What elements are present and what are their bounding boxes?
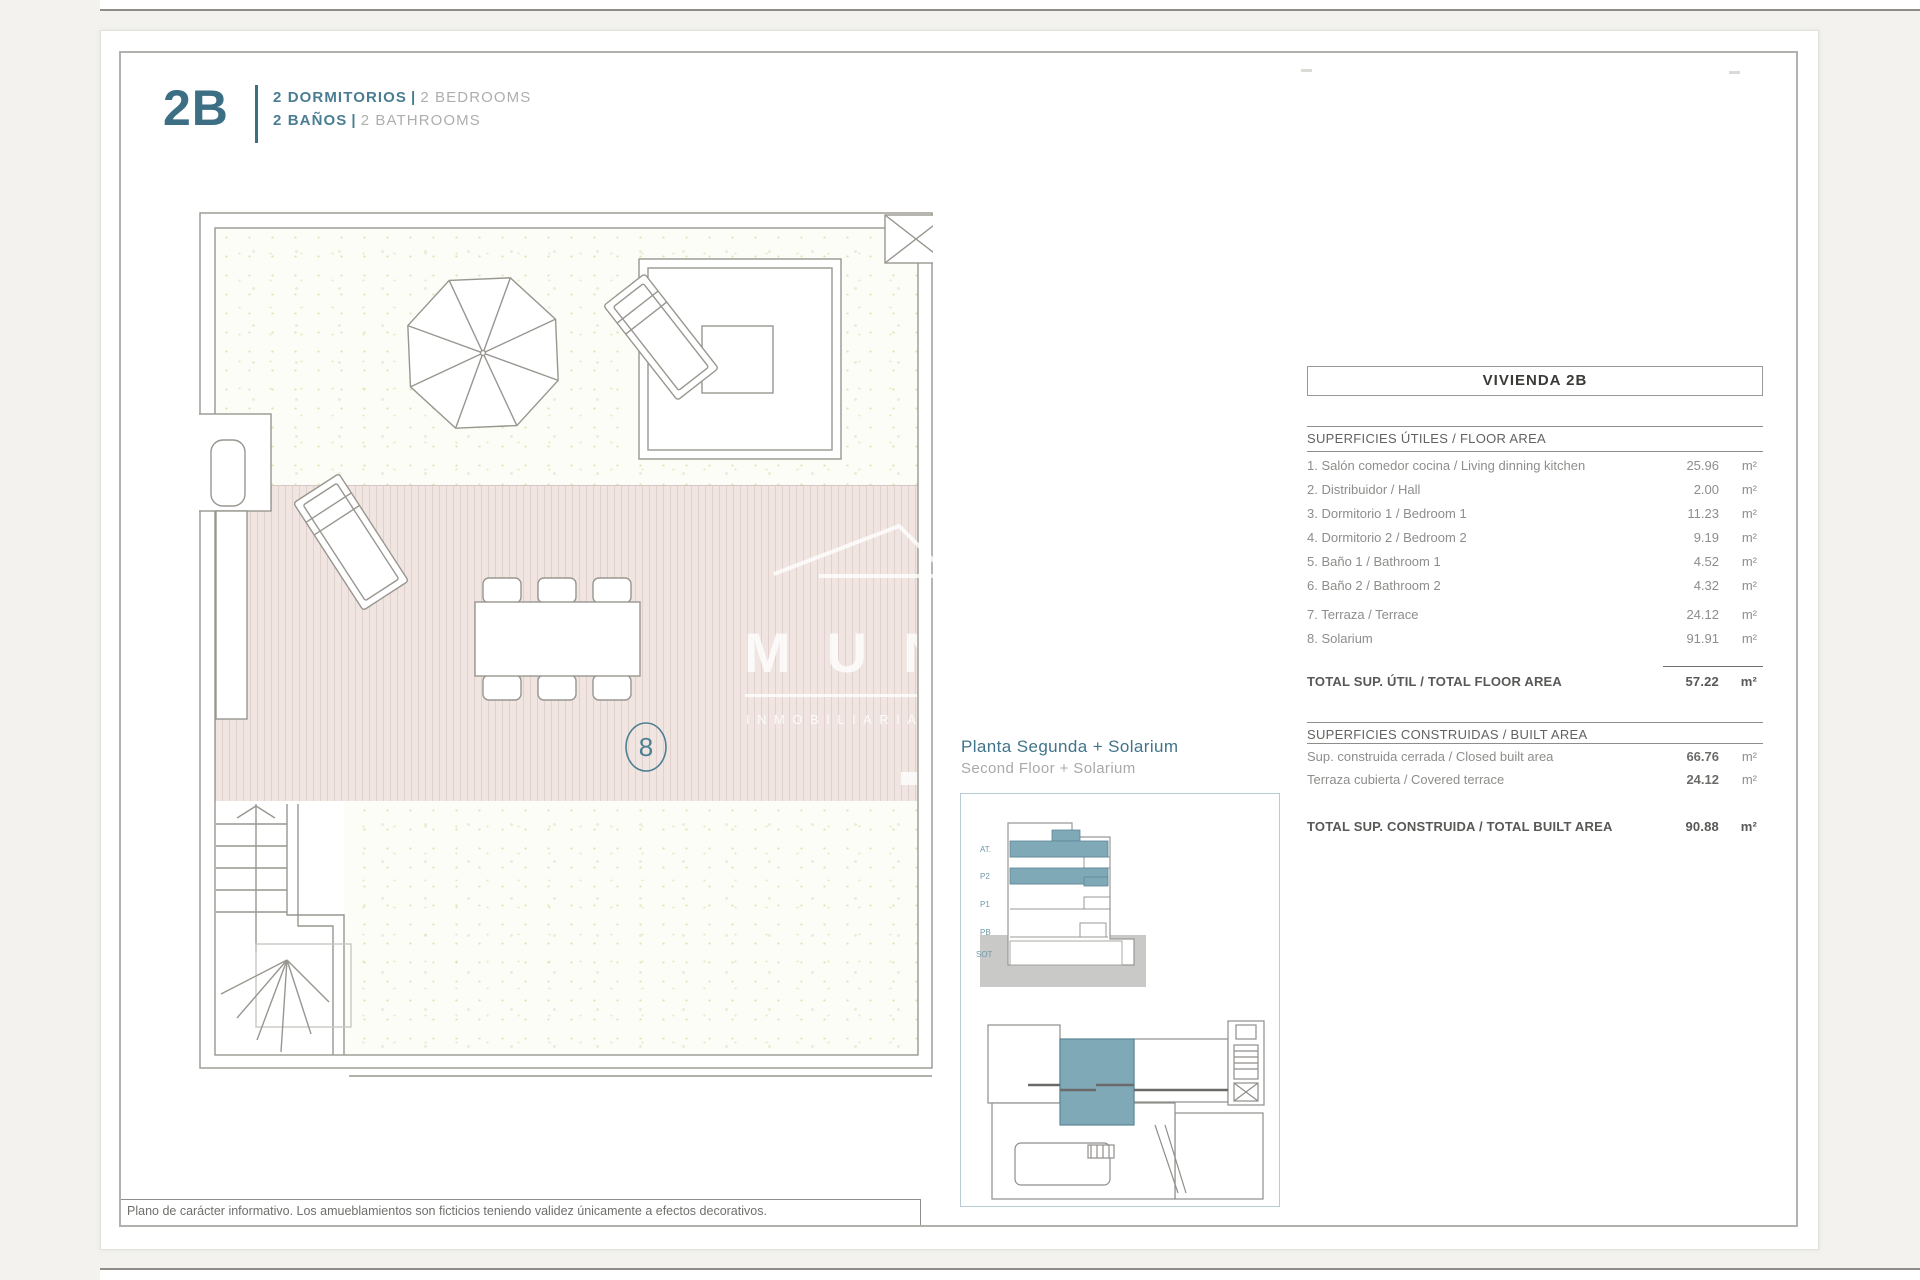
watermark-emblem: [774, 526, 933, 576]
table-row: 3. Dormitorio 1 / Bedroom 111.23m²: [1307, 506, 1763, 522]
level-label-p1: P1: [980, 900, 990, 909]
registration-mark: [1729, 71, 1740, 74]
floor-total-row: TOTAL SUP. ÚTIL / TOTAL FLOOR AREA57.22m…: [1307, 674, 1763, 690]
bathrooms-es: 2 BAÑOS: [273, 112, 347, 129]
level-label-p2: P2: [980, 872, 990, 881]
table-row: 4. Dormitorio 2 / Bedroom 29.19m²: [1307, 530, 1763, 546]
table-row: 7. Terraza / Terrace24.12m²: [1307, 607, 1763, 623]
table-row: Sup. construida cerrada / Closed built a…: [1307, 749, 1763, 765]
header-divider: [255, 85, 258, 143]
bathrooms-en: 2 BATHROOMS: [361, 112, 481, 129]
room-number-badge: 8: [626, 723, 666, 771]
bedrooms-spec: 2 DORMITORIOS|2 BEDROOMS: [273, 89, 531, 106]
separator: |: [347, 112, 360, 129]
floor-area-section-header: SUPERFICIES ÚTILES / FLOOR AREA: [1307, 431, 1546, 446]
floor-label-en: Second Floor + Solarium: [961, 760, 1136, 777]
level-label-sot: SOT: [976, 950, 993, 959]
table-row: 8. Solarium91.91m²: [1307, 631, 1763, 647]
table-row: 6. Baño 2 / Bathroom 24.32m²: [1307, 578, 1763, 594]
disclaimer-note: Plano de carácter informativo. Los amueb…: [121, 1199, 921, 1225]
previous-page-edge: [100, 0, 1920, 11]
built-area-section-header: SUPERFICIES CONSTRUIDAS / BUILT AREA: [1307, 727, 1588, 742]
built-total-row: TOTAL SUP. CONSTRUIDA / TOTAL BUILT AREA…: [1307, 819, 1763, 835]
level-label-pb: PB: [980, 928, 991, 937]
table-row: Terraza cubierta / Covered terrace24.12m…: [1307, 772, 1763, 788]
floor-plan-drawing: 8: [199, 212, 933, 1084]
floor-label-es: Planta Segunda + Solarium: [961, 737, 1178, 757]
bathrooms-spec: 2 BAÑOS|2 BATHROOMS: [273, 112, 481, 129]
highlighted-unit: [1060, 1039, 1134, 1125]
building-inset: AT. P2 P1 PB SOT: [960, 793, 1280, 1207]
document-page: 2B 2 DORMITORIOS|2 BEDROOMS 2 BAÑOS|2 BA…: [100, 30, 1819, 1250]
separator: |: [407, 89, 420, 106]
table-row: 2. Distribuidor / Hall2.00m²: [1307, 482, 1763, 498]
floor-plan: MUN INMOBILIARIA: [199, 212, 933, 1084]
level-label-at: AT.: [980, 845, 991, 854]
bedrooms-en: 2 BEDROOMS: [420, 89, 531, 106]
table-row: 5. Baño 1 / Bathroom 14.52m²: [1307, 554, 1763, 570]
plan-sheet: 2B 2 DORMITORIOS|2 BEDROOMS 2 BAÑOS|2 BA…: [119, 51, 1798, 1227]
unit-code: 2B: [163, 79, 229, 137]
bedrooms-es: 2 DORMITORIOS: [273, 89, 407, 106]
table-title: VIVIENDA 2B: [1307, 366, 1763, 396]
registration-mark: [1301, 69, 1312, 72]
room-number: 8: [639, 732, 653, 762]
table-row: 1. Salón comedor cocina / Living dinning…: [1307, 458, 1763, 474]
next-page-edge: [100, 1268, 1920, 1280]
